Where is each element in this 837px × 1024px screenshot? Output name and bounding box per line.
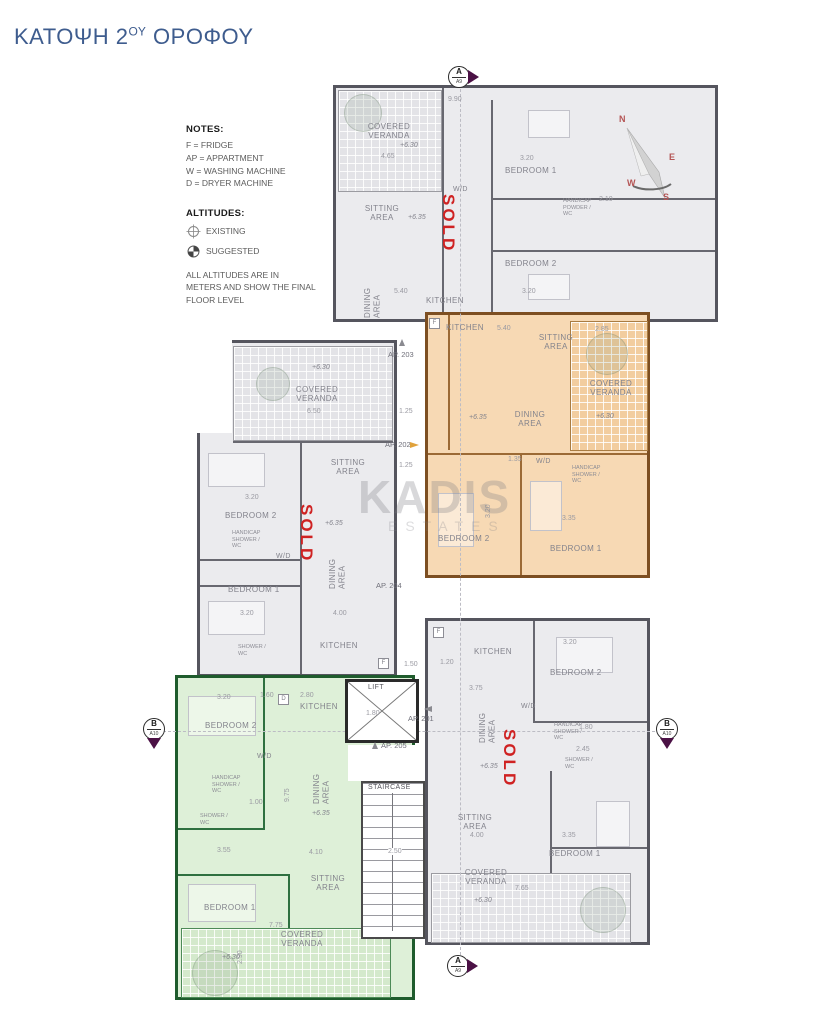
dimension-label: 2.80 <box>300 692 314 699</box>
ap202-veranda-altitude: +6.30 <box>596 413 614 420</box>
dimension-label: 1.20 <box>440 659 454 666</box>
ap205-dining-label: DINING AREA <box>312 758 331 804</box>
ap205-entry-arrow-icon <box>372 742 378 749</box>
apartment-201-block <box>425 618 650 945</box>
title-superscript: ΟΥ <box>128 25 146 39</box>
dimension-label: 1.50 <box>404 661 418 668</box>
dimension-label: 4.00 <box>470 832 484 839</box>
dimension-label: 7.75 <box>269 922 283 929</box>
ap204-veranda-altitude: +6.30 <box>312 364 330 371</box>
marker-code: A9 <box>456 78 462 86</box>
suggested-label: SUGGESTED <box>206 245 259 258</box>
ap203-bedroom1-label: BEDROOM 1 <box>505 166 557 175</box>
dimension-label: 1.60 <box>260 692 274 699</box>
dimension-label: 3.75 <box>469 685 483 692</box>
marker-letter: B <box>660 719 674 730</box>
section-marker-a-bottom: AA9 <box>447 955 469 977</box>
marker-code: A9 <box>455 967 461 975</box>
marker-arrow-icon <box>467 959 478 973</box>
note-line: W = WASHING MACHINE <box>186 165 346 178</box>
altitudes-footnote: ALL ALTITUDES ARE IN METERS AND SHOW THE… <box>186 269 316 306</box>
ap203-handicap-label: HANDICAP POWDER / WC <box>563 198 597 218</box>
ap201-bedroom2-label: BEDROOM 2 <box>550 668 602 677</box>
ap201-sitting-label: SITTING AREA <box>455 813 495 831</box>
ap203-sitting-label: SITTING AREA <box>362 204 402 222</box>
ap205-bedroom2-label: BEDROOM 2 <box>205 721 257 730</box>
ap203-wd-label: W/D <box>453 186 468 194</box>
ap204-fridge-label: F <box>378 658 389 669</box>
dimension-label: 4.65 <box>381 153 395 160</box>
dimension-label: 4.10 <box>309 849 323 856</box>
dimension-label: 3.20 <box>522 288 536 295</box>
dimension-label: 1.00 <box>249 799 263 806</box>
ap203-dining-label: DINING AREA <box>363 272 382 318</box>
interior-wall <box>178 874 288 876</box>
ap201-number-label: AP. 201 <box>408 714 434 723</box>
bed-furniture <box>528 274 570 300</box>
interior-wall <box>491 100 493 319</box>
dimension-label: 2.50 <box>388 848 402 855</box>
interior-wall <box>233 441 393 443</box>
interior-wall <box>520 455 522 575</box>
dimension-label: 2.85 <box>595 326 609 333</box>
marker-arrow-icon <box>147 738 161 749</box>
notes-heading: NOTES: <box>186 124 346 135</box>
compass-east-label: E <box>669 152 675 162</box>
dimension-label: 9.90 <box>448 96 462 103</box>
ap202-wd-label: W/D <box>536 458 551 466</box>
lift-label: LIFT <box>368 684 384 692</box>
plan-notch <box>348 745 418 781</box>
ap204-sold-badge: SOLD <box>296 504 316 563</box>
ap201-bedroom1-label: BEDROOM 1 <box>549 849 601 858</box>
dimension-label: 6.50 <box>307 408 321 415</box>
existing-altitude-icon <box>186 224 201 239</box>
ap205-veranda-label: COVERED VERANDA <box>272 930 332 948</box>
compass-north-label: N <box>619 114 626 124</box>
interior-wall <box>533 721 647 723</box>
ap202-sitting-label: SITTING AREA <box>536 333 576 351</box>
dimension-label: 4.00 <box>333 610 347 617</box>
title-prefix: ΚΑΤΟΨΗ 2 <box>14 24 128 49</box>
staircase-area <box>361 781 425 939</box>
ap201-veranda-altitude: +6.30 <box>474 897 492 904</box>
ap203-sold-badge: SOLD <box>438 194 458 253</box>
ap204-bedroom1-label: BEDROOM 1 <box>228 585 280 594</box>
ap203-kitchen-label: KITCHEN <box>426 296 464 305</box>
watermark-sub: ESTATES <box>388 518 506 534</box>
compass-south-label: S <box>663 192 669 202</box>
existing-label: EXISTING <box>206 225 246 238</box>
interior-wall <box>491 250 715 252</box>
ap202-handicap-label: HANDICAP SHOWER / WC <box>572 465 602 485</box>
dimension-label: 3.20 <box>217 694 231 701</box>
ap204-veranda-label: COVERED VERANDA <box>287 385 347 403</box>
marker-code: A10 <box>150 730 159 738</box>
marker-arrow-icon <box>660 738 674 749</box>
plant-icon <box>586 333 628 375</box>
dimension-label: 3.20 <box>240 610 254 617</box>
compass-west-label: W <box>627 178 636 188</box>
dimension-label: 9.75 <box>284 778 291 802</box>
ap202-bedroom1-label: BEDROOM 1 <box>550 544 602 553</box>
marker-letter: A <box>451 956 465 967</box>
dimension-label: 3.20 <box>520 155 534 162</box>
marker-arrow-icon <box>468 70 479 84</box>
note-line: F = FRIDGE <box>186 139 346 152</box>
dimension-label: 1.25 <box>399 462 413 469</box>
dimension-label: 1.25 <box>399 408 413 415</box>
dimension-label: 3.35 <box>562 515 576 522</box>
ap202-entry-arrow-icon <box>410 442 419 448</box>
section-marker-a-top: AA9 <box>448 66 470 88</box>
ap203-veranda-label: COVERED VERANDA <box>360 122 418 140</box>
ap205-dryer-label: D <box>278 694 289 705</box>
section-marker-b-left: BA10 <box>143 718 165 740</box>
ap204-handicap-label: HANDICAP SHOWER / WC <box>232 530 264 550</box>
ap205-dining-altitude: +6.35 <box>312 810 330 817</box>
watermark-brand: KADIS <box>358 470 511 524</box>
ap205-kitchen-label: KITCHEN <box>300 702 338 711</box>
ap201-wd-label: W/D <box>521 703 536 711</box>
bed-furniture <box>528 110 570 138</box>
ap205-bedroom1-label: BEDROOM 1 <box>204 903 256 912</box>
ap201-sold-badge: SOLD <box>499 729 519 788</box>
dimension-label: 1.80 <box>579 724 593 731</box>
dimension-label: 3.20 <box>563 639 577 646</box>
ap204-kitchen-label: KITCHEN <box>320 641 358 650</box>
dimension-label: 5.40 <box>394 288 408 295</box>
plant-icon <box>580 887 626 933</box>
marker-letter: A <box>452 67 466 78</box>
ap205-number-label: AP. 205 <box>381 741 407 750</box>
dimension-label: 3.20 <box>245 494 259 501</box>
ap205-handicap-label: HANDICAP SHOWER / WC <box>212 775 244 795</box>
dimension-label: 3.55 <box>217 847 231 854</box>
marker-code: A10 <box>663 730 672 738</box>
ap204-bedroom2-label: BEDROOM 2 <box>225 511 277 520</box>
ap202-number-label: AP. 202 <box>385 440 411 449</box>
staircase-divider <box>392 793 393 931</box>
floor-plan-page: ΚΑΤΟΨΗ 2ΟΥ ΟΡΟΦΟΥ NOTES: F = FRIDGE AP =… <box>0 0 837 1024</box>
ap203-number-label: AP. 203 <box>388 350 414 359</box>
ap201-shower-label: SHOWER / WC <box>565 757 593 770</box>
section-marker-b-right: BA10 <box>656 718 678 740</box>
ap203-entry-arrow-icon <box>399 339 405 346</box>
notes-panel: NOTES: F = FRIDGE AP = APPARTMENT W = WA… <box>186 124 346 306</box>
ap201-fridge-label: F <box>433 627 444 638</box>
bed-furniture <box>530 481 562 531</box>
ap201-dining-altitude: +6.35 <box>480 763 498 770</box>
dimension-label: 5.40 <box>497 325 511 332</box>
ap205-sitting-label: SITTING AREA <box>308 874 348 892</box>
marker-letter: B <box>147 719 161 730</box>
note-line: D = DRYER MACHINE <box>186 177 346 190</box>
compass-rose: N E W S <box>605 112 700 222</box>
ap204-shower-label: SHOWER / WC <box>238 644 266 657</box>
plant-icon <box>256 367 290 401</box>
ap203-sitting-altitude: +6.35 <box>408 214 426 221</box>
ap204-wd-label: W/D <box>276 553 291 561</box>
page-title: ΚΑΤΟΨΗ 2ΟΥ ΟΡΟΦΟΥ <box>14 24 254 50</box>
ap204-number-label: AP. 204 <box>376 581 402 590</box>
dimension-label: 1.35 <box>508 456 522 463</box>
bed-furniture <box>208 453 265 487</box>
dimension-label: 2.45 <box>576 746 590 753</box>
note-line: AP = APPARTMENT <box>186 152 346 165</box>
suggested-altitude-icon <box>186 244 201 259</box>
ap205-wd-label: W/D <box>257 753 272 761</box>
ap202-veranda-label: COVERED VERANDA <box>586 379 636 397</box>
compass-needle-icon <box>605 112 700 222</box>
altitudes-heading: ALTITUDES: <box>186 208 346 219</box>
ap201-entry-arrow-icon <box>424 706 432 712</box>
bed-furniture <box>208 601 265 635</box>
interior-wall <box>448 315 450 450</box>
ap204-sitting-altitude: +6.35 <box>325 520 343 527</box>
ap202-bedroom2-label: BEDROOM 2 <box>438 534 490 543</box>
ap202-fridge-label: F <box>429 318 440 329</box>
plan-notch <box>194 337 232 433</box>
ap201-dining-label: DINING AREA <box>478 697 497 743</box>
ap203-veranda-altitude: +6.30 <box>400 142 418 149</box>
ap202-dining-altitude: +6.35 <box>469 414 487 421</box>
ap203-bedroom2-label: BEDROOM 2 <box>505 259 557 268</box>
ap204-dining-label: DINING AREA <box>328 543 347 589</box>
interior-wall <box>178 828 265 830</box>
ap202-dining-label: DINING AREA <box>510 410 550 428</box>
ap201-veranda-label: COVERED VERANDA <box>456 868 516 886</box>
dimension-label: 1.80 <box>366 710 380 717</box>
ap202-kitchen-label: KITCHEN <box>446 323 484 332</box>
ap205-shower-label: SHOWER / WC <box>200 813 228 826</box>
ap201-kitchen-label: KITCHEN <box>474 647 512 656</box>
title-suffix: ΟΡΟΦΟΥ <box>146 24 253 49</box>
dimension-label: 2.90 <box>237 944 244 964</box>
bed-furniture <box>596 801 630 847</box>
staircase-label: STAIRCASE <box>366 784 413 792</box>
dimension-label: 3.35 <box>562 832 576 839</box>
interior-wall <box>288 874 290 928</box>
dimension-label: 7.65 <box>515 885 529 892</box>
